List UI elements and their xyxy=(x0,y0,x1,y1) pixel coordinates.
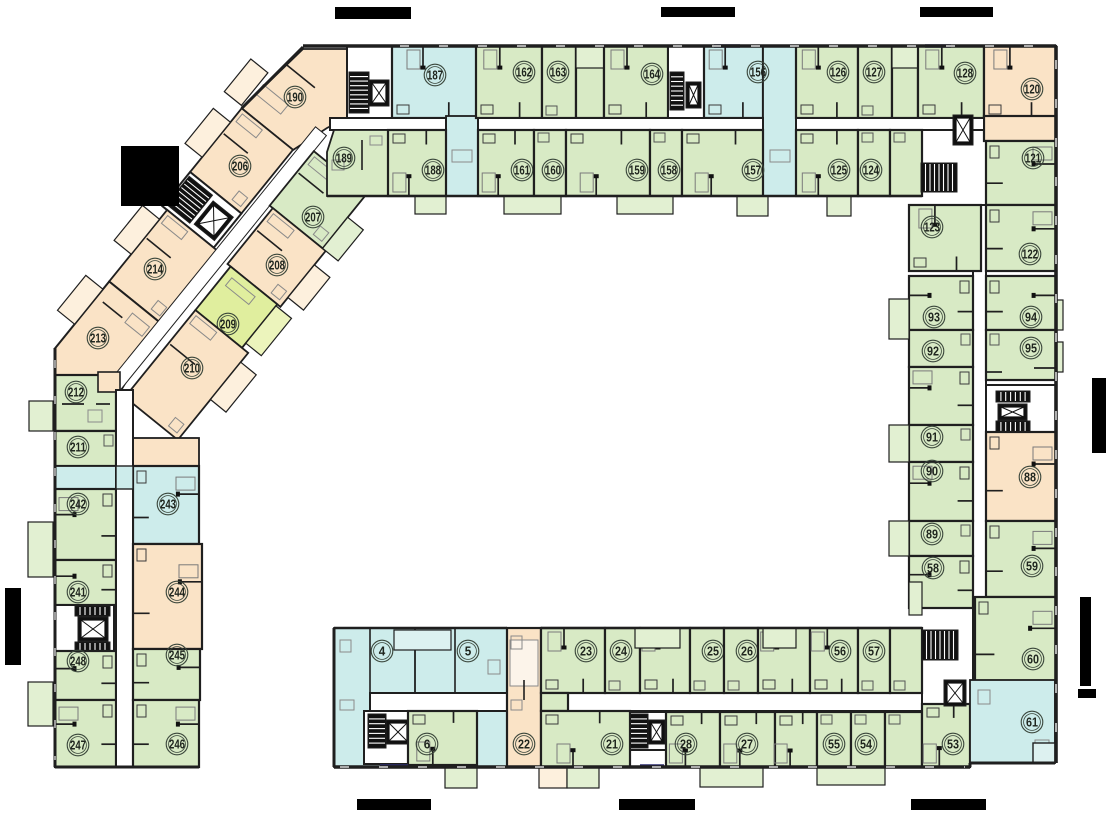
svg-text:89: 89 xyxy=(926,527,938,542)
svg-text:159: 159 xyxy=(629,163,645,178)
svg-text:95: 95 xyxy=(1025,341,1037,356)
svg-text:6: 6 xyxy=(424,737,431,752)
svg-text:246: 246 xyxy=(169,737,185,752)
svg-text:54: 54 xyxy=(860,737,873,752)
svg-text:127: 127 xyxy=(866,65,882,80)
svg-text:162: 162 xyxy=(516,65,532,80)
svg-text:247: 247 xyxy=(70,738,86,753)
svg-text:58: 58 xyxy=(927,561,939,576)
svg-text:214: 214 xyxy=(147,262,164,277)
svg-text:156: 156 xyxy=(750,65,766,80)
svg-text:248: 248 xyxy=(70,654,86,669)
svg-text:5: 5 xyxy=(465,644,472,659)
svg-text:56: 56 xyxy=(834,644,846,659)
svg-text:187: 187 xyxy=(427,68,443,83)
svg-text:23: 23 xyxy=(580,644,592,659)
svg-text:92: 92 xyxy=(927,344,939,359)
svg-text:120: 120 xyxy=(1024,82,1040,97)
svg-text:207: 207 xyxy=(305,210,321,225)
svg-text:90: 90 xyxy=(926,464,938,479)
svg-text:164: 164 xyxy=(644,67,661,82)
svg-text:88: 88 xyxy=(1024,470,1036,485)
svg-text:55: 55 xyxy=(828,737,840,752)
svg-text:60: 60 xyxy=(1027,652,1039,667)
svg-text:158: 158 xyxy=(661,163,677,178)
svg-text:21: 21 xyxy=(606,737,618,752)
svg-text:244: 244 xyxy=(169,585,186,600)
svg-text:210: 210 xyxy=(184,361,200,376)
svg-text:209: 209 xyxy=(220,317,236,332)
svg-text:243: 243 xyxy=(160,497,176,512)
svg-text:128: 128 xyxy=(957,66,973,81)
svg-text:94: 94 xyxy=(1025,310,1038,325)
svg-text:61: 61 xyxy=(1026,715,1038,730)
svg-text:125: 125 xyxy=(831,163,847,178)
svg-text:59: 59 xyxy=(1026,559,1038,574)
svg-text:124: 124 xyxy=(863,163,880,178)
svg-text:53: 53 xyxy=(947,737,959,752)
svg-text:122: 122 xyxy=(1022,247,1038,262)
svg-text:241: 241 xyxy=(70,585,86,600)
svg-text:160: 160 xyxy=(545,163,561,178)
svg-text:189: 189 xyxy=(336,151,352,166)
svg-text:126: 126 xyxy=(830,65,846,80)
svg-text:208: 208 xyxy=(269,258,285,273)
svg-text:121: 121 xyxy=(1025,151,1041,166)
svg-text:4: 4 xyxy=(379,644,386,659)
svg-text:25: 25 xyxy=(707,644,719,659)
svg-text:213: 213 xyxy=(90,331,106,346)
svg-text:26: 26 xyxy=(741,644,753,659)
svg-text:93: 93 xyxy=(928,310,940,325)
svg-text:212: 212 xyxy=(68,385,84,400)
svg-text:163: 163 xyxy=(550,65,566,80)
svg-text:27: 27 xyxy=(741,737,753,752)
svg-text:161: 161 xyxy=(514,163,530,178)
svg-text:188: 188 xyxy=(425,163,441,178)
svg-text:157: 157 xyxy=(745,163,761,178)
svg-text:24: 24 xyxy=(615,644,628,659)
svg-text:28: 28 xyxy=(680,737,692,752)
svg-text:123: 123 xyxy=(924,220,940,235)
svg-text:22: 22 xyxy=(518,737,530,752)
svg-text:57: 57 xyxy=(868,644,880,659)
svg-text:206: 206 xyxy=(232,159,248,174)
svg-text:91: 91 xyxy=(926,430,938,445)
svg-text:242: 242 xyxy=(70,497,86,512)
svg-text:190: 190 xyxy=(287,90,303,105)
svg-text:245: 245 xyxy=(169,648,185,663)
svg-text:211: 211 xyxy=(70,440,86,455)
